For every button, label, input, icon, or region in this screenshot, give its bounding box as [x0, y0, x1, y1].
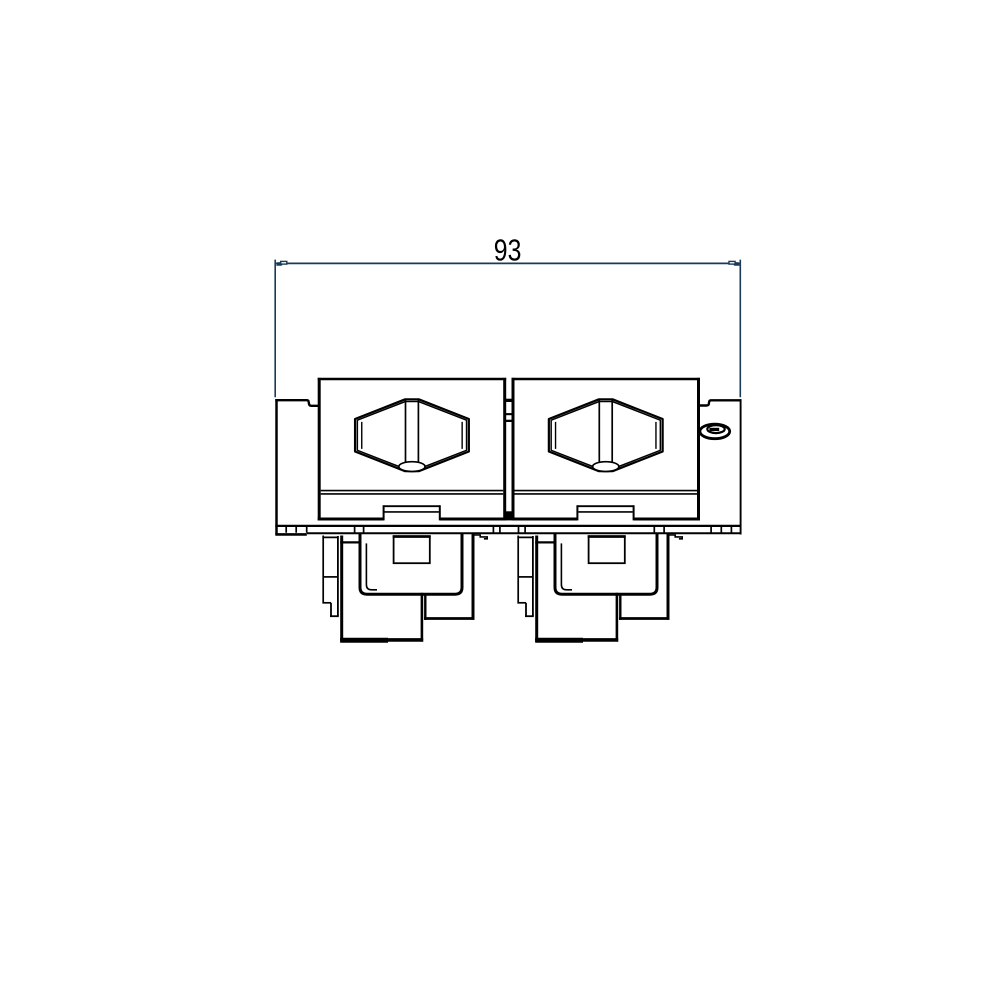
svg-text:93: 93: [494, 233, 522, 267]
